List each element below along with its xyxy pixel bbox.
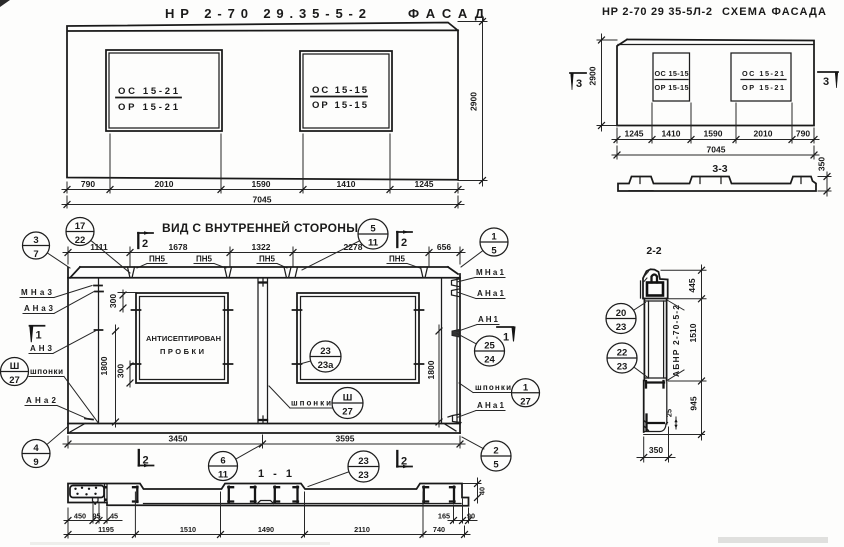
svg-text:300: 300 xyxy=(116,364,126,378)
svg-text:2900: 2900 xyxy=(469,92,479,111)
svg-text:2010: 2010 xyxy=(155,179,174,189)
svg-text:3-3: 3-3 xyxy=(712,163,727,175)
svg-text:5: 5 xyxy=(493,460,499,471)
svg-text:27: 27 xyxy=(9,375,20,386)
svg-text:СХЕМА ФАСАДА: СХЕМА ФАСАДА xyxy=(722,6,826,18)
svg-text:23: 23 xyxy=(320,346,331,357)
svg-text:3450: 3450 xyxy=(169,434,188,444)
svg-text:НР 2-70 29.35-5-2: НР 2-70 29.35-5-2 xyxy=(165,6,366,21)
svg-text:ОС 15-21: ОС 15-21 xyxy=(118,86,179,97)
svg-text:445: 445 xyxy=(687,278,697,292)
svg-text:20: 20 xyxy=(616,308,627,319)
svg-text:1195: 1195 xyxy=(98,525,114,534)
svg-text:1322: 1322 xyxy=(252,242,271,252)
svg-text:2010: 2010 xyxy=(754,129,773,139)
svg-text:1510: 1510 xyxy=(688,323,698,342)
svg-text:1590: 1590 xyxy=(704,129,723,139)
svg-text:ФАСАД: ФАСАД xyxy=(408,6,485,21)
svg-text:3: 3 xyxy=(823,76,829,88)
svg-text:11: 11 xyxy=(368,238,379,249)
svg-text:АНа1: АНа1 xyxy=(477,401,505,410)
svg-text:790: 790 xyxy=(81,179,95,189)
svg-text:740: 740 xyxy=(433,525,445,534)
svg-text:1800: 1800 xyxy=(426,360,436,379)
svg-text:25: 25 xyxy=(665,409,674,417)
svg-text:45: 45 xyxy=(110,512,118,521)
svg-text:7: 7 xyxy=(33,249,38,260)
svg-text:24: 24 xyxy=(484,355,495,366)
svg-text:ПН5: ПН5 xyxy=(149,255,166,264)
svg-text:АН3: АН3 xyxy=(30,344,53,353)
svg-text:ОС 15-15: ОС 15-15 xyxy=(655,69,689,78)
svg-text:МНа3: МНа3 xyxy=(21,288,53,297)
svg-text:4: 4 xyxy=(33,443,39,454)
svg-text:ОР 15-15: ОР 15-15 xyxy=(312,100,368,111)
svg-text:22: 22 xyxy=(75,235,86,246)
svg-text:АНа2: АНа2 xyxy=(26,396,57,405)
svg-text:1245: 1245 xyxy=(415,179,434,189)
svg-text:1410: 1410 xyxy=(337,179,356,189)
svg-text:Ш: Ш xyxy=(343,393,353,404)
svg-text:23а: 23а xyxy=(318,360,335,371)
svg-text:2: 2 xyxy=(401,237,407,249)
svg-text:1490: 1490 xyxy=(258,525,274,534)
svg-text:1: 1 xyxy=(491,232,497,243)
svg-text:АНТИСЕПТИРОВАН: АНТИСЕПТИРОВАН xyxy=(146,334,221,343)
svg-text:5: 5 xyxy=(491,246,497,257)
svg-text:Ш: Ш xyxy=(10,361,20,372)
svg-text:1678: 1678 xyxy=(169,242,188,252)
svg-text:2900: 2900 xyxy=(588,66,598,85)
svg-text:шпонки: шпонки xyxy=(30,367,63,376)
svg-text:95: 95 xyxy=(92,512,100,521)
svg-text:6: 6 xyxy=(220,456,225,467)
svg-text:3: 3 xyxy=(576,78,582,90)
svg-text:790: 790 xyxy=(796,129,810,139)
svg-text:1590: 1590 xyxy=(252,179,271,189)
svg-text:АН1: АН1 xyxy=(478,315,499,324)
svg-text:2110: 2110 xyxy=(354,525,370,534)
svg-text:656: 656 xyxy=(437,242,451,252)
svg-text:3: 3 xyxy=(33,235,38,246)
svg-text:АНа1: АНа1 xyxy=(477,289,505,298)
svg-text:2: 2 xyxy=(143,455,149,467)
svg-text:945: 945 xyxy=(689,396,699,410)
svg-text:1: 1 xyxy=(503,332,509,344)
svg-text:22: 22 xyxy=(617,348,628,359)
svg-text:ПН5: ПН5 xyxy=(259,255,276,264)
svg-text:40: 40 xyxy=(478,487,487,495)
svg-text:ОС 15-15: ОС 15-15 xyxy=(312,85,368,96)
svg-text:23: 23 xyxy=(617,362,628,373)
svg-text:450: 450 xyxy=(74,512,86,521)
svg-text:1245: 1245 xyxy=(625,129,644,139)
svg-text:1: 1 xyxy=(523,382,529,393)
svg-text:ОР 15-21: ОР 15-21 xyxy=(742,83,784,92)
svg-text:350: 350 xyxy=(649,445,663,455)
svg-text:МНа1: МНа1 xyxy=(476,268,505,277)
svg-text:300: 300 xyxy=(108,294,118,308)
svg-text:2: 2 xyxy=(401,456,407,468)
svg-text:1: 1 xyxy=(36,330,42,342)
svg-text:АНа3: АНа3 xyxy=(24,304,54,313)
svg-text:23: 23 xyxy=(616,322,627,333)
svg-text:1410: 1410 xyxy=(662,129,681,139)
svg-text:ОС 15-21: ОС 15-21 xyxy=(742,69,784,78)
svg-text:3595: 3595 xyxy=(336,434,355,444)
svg-text:7045: 7045 xyxy=(707,145,726,155)
svg-text:17: 17 xyxy=(75,221,86,232)
svg-text:165: 165 xyxy=(438,512,450,521)
svg-text:шпонки: шпонки xyxy=(291,399,331,408)
svg-text:ОР 15-15: ОР 15-15 xyxy=(655,83,689,92)
svg-text:1510: 1510 xyxy=(180,525,196,534)
svg-text:27: 27 xyxy=(342,407,353,418)
svg-text:11: 11 xyxy=(218,470,229,481)
svg-text:ПН5: ПН5 xyxy=(389,255,406,264)
svg-text:2: 2 xyxy=(493,446,498,457)
svg-text:90: 90 xyxy=(467,512,475,521)
svg-text:350: 350 xyxy=(817,157,827,171)
svg-text:23: 23 xyxy=(358,470,369,481)
svg-text:23: 23 xyxy=(358,456,369,467)
svg-text:АБНР 2-70-5-2: АБНР 2-70-5-2 xyxy=(671,305,681,377)
svg-text:шпонки: шпонки xyxy=(475,383,511,392)
svg-text:9: 9 xyxy=(33,457,38,468)
svg-text:25: 25 xyxy=(484,341,495,352)
svg-text:ПН5: ПН5 xyxy=(196,255,213,264)
svg-text:НР 2-70 29 35-5Л-2: НР 2-70 29 35-5Л-2 xyxy=(602,6,712,18)
svg-text:2-2: 2-2 xyxy=(646,245,661,257)
svg-text:ПРОБКИ: ПРОБКИ xyxy=(160,347,204,356)
svg-text:7045: 7045 xyxy=(253,195,272,205)
svg-text:2: 2 xyxy=(142,238,148,250)
svg-text:5: 5 xyxy=(370,224,376,235)
svg-text:27: 27 xyxy=(520,396,531,407)
svg-text:ВИД С ВНУТРЕННЕЙ СТОРОНЫ: ВИД С ВНУТРЕННЕЙ СТОРОНЫ xyxy=(162,220,358,235)
svg-text:1 - 1: 1 - 1 xyxy=(258,468,292,480)
svg-text:ОР 15-21: ОР 15-21 xyxy=(118,102,179,113)
svg-text:1800: 1800 xyxy=(99,356,109,375)
